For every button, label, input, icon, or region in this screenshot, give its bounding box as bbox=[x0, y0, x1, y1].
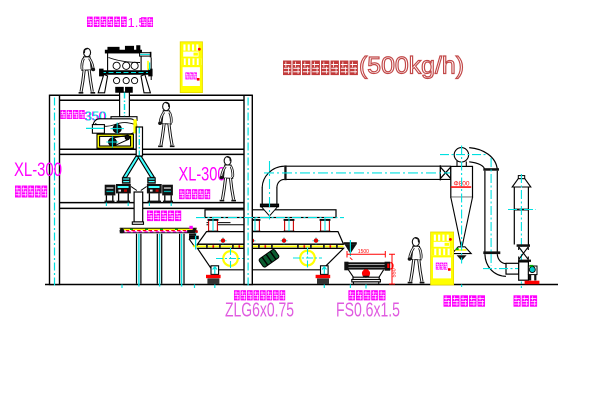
svg-text:ZLG6x0.75: ZLG6x0.75 bbox=[225, 299, 294, 322]
svg-text:FS0.6x1.5: FS0.6x1.5 bbox=[336, 299, 400, 322]
svg-text:1500: 1500 bbox=[358, 249, 369, 255]
svg-text:(500kg/h): (500kg/h) bbox=[359, 53, 464, 80]
svg-text:XL-300: XL-300 bbox=[14, 159, 62, 181]
svg-text:XL-300: XL-300 bbox=[179, 164, 226, 186]
svg-text:550: 550 bbox=[392, 268, 398, 277]
